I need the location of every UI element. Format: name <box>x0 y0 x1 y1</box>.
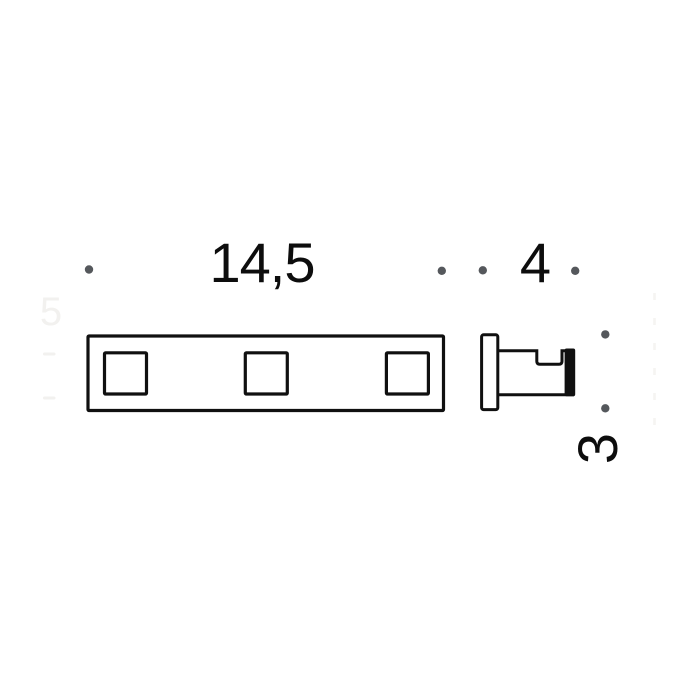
ghost-tick-lower <box>43 397 56 400</box>
dimension-dot-hook-top <box>601 330 609 338</box>
dimension-label-rail-width: 14,5 <box>172 233 352 293</box>
ghost-tick-upper <box>43 353 56 356</box>
technical-drawing-svg <box>0 0 700 700</box>
hook-wall-plate-profile <box>482 335 498 410</box>
dimension-dot-rail-right <box>438 267 446 275</box>
dimension-label-hook-depth: 4 <box>505 233 565 293</box>
dimension-label-hook-height: 3 <box>568 419 628 479</box>
hook-arm-top-edge <box>498 351 565 365</box>
dimension-dot-hook-bottom <box>601 404 609 412</box>
dimension-dot-hook-back <box>479 266 487 274</box>
rail-square-hook-1 <box>105 353 147 394</box>
hook-tip-end-cap <box>565 349 576 397</box>
dimension-dot-rail-left <box>85 265 93 273</box>
drawing-canvas: 14,5 4 3 5 <box>0 0 700 700</box>
dimension-dot-hook-front <box>571 267 579 275</box>
ghost-label-five: 5 <box>26 287 76 337</box>
rail-square-hook-3 <box>386 353 428 394</box>
rail-square-hook-2 <box>245 353 287 394</box>
